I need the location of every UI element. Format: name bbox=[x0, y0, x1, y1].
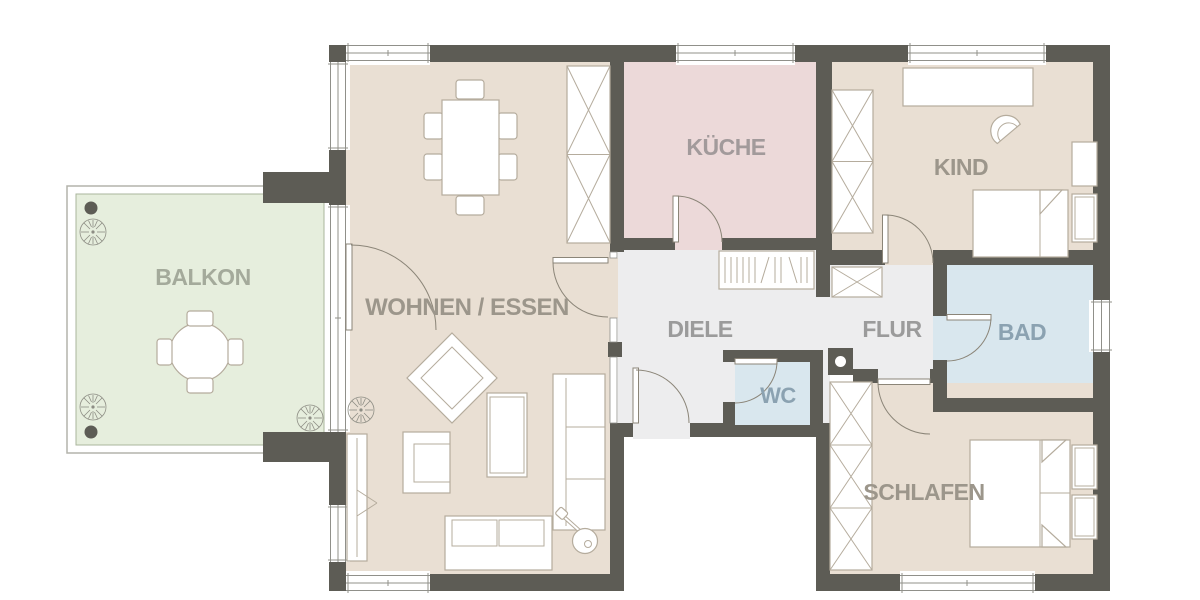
couch bbox=[445, 516, 552, 570]
planter-dot-icon bbox=[85, 426, 98, 439]
wardrobe-wohnen bbox=[567, 66, 610, 243]
window-left-lower bbox=[326, 505, 350, 562]
floor-passage bbox=[816, 297, 830, 348]
wall-bad-schlafen bbox=[933, 398, 1093, 412]
room-label-kueche: KÜCHE bbox=[686, 134, 765, 160]
window-top-kueche bbox=[676, 41, 795, 65]
dining-chair bbox=[424, 154, 443, 180]
room-label-diele: DIELE bbox=[667, 316, 732, 342]
plant-icon bbox=[348, 397, 374, 423]
desk bbox=[903, 68, 1033, 106]
wc-threshold bbox=[723, 362, 735, 402]
window-top-kind bbox=[908, 41, 1046, 65]
dining-chair bbox=[424, 113, 443, 139]
dining-table bbox=[442, 100, 499, 195]
balcony-chair-left bbox=[157, 339, 172, 365]
window-bad bbox=[1089, 300, 1114, 352]
wall-partition-post bbox=[608, 342, 622, 357]
dining-chair bbox=[456, 196, 484, 215]
entrance-threshold bbox=[633, 421, 690, 439]
wall-flur-schlafen-left bbox=[853, 369, 878, 383]
window-bottom-schlafen bbox=[900, 571, 1035, 595]
wall-diele-flur bbox=[816, 250, 830, 297]
wall-indent-left bbox=[610, 423, 624, 591]
balcony-chair-bottom bbox=[187, 378, 213, 393]
balcony-pier-top bbox=[263, 172, 346, 203]
armchair bbox=[403, 432, 450, 493]
wall-indent-right bbox=[816, 423, 830, 591]
wall-bad-left-upper bbox=[933, 265, 947, 316]
flur-cabinet bbox=[832, 267, 882, 297]
duct-dot-icon bbox=[835, 356, 846, 367]
wall-bad-left-lower bbox=[933, 360, 947, 398]
sofa bbox=[553, 374, 605, 530]
bed-schlafen bbox=[970, 440, 1070, 547]
kind-threshold bbox=[885, 250, 933, 265]
wardrobe-schlafen bbox=[830, 382, 872, 570]
room-label-bad: BAD bbox=[998, 319, 1046, 345]
nightstand-kind bbox=[1072, 194, 1097, 242]
nightstand-schlafen-bottom bbox=[1072, 495, 1097, 539]
room-label-kind: KIND bbox=[934, 154, 988, 180]
floor-wohnen-door-gap bbox=[610, 258, 618, 318]
balcony-chair-right bbox=[228, 339, 243, 365]
balcony bbox=[67, 186, 330, 453]
dining-chair bbox=[498, 154, 517, 180]
nightstand-schlafen-top bbox=[1072, 445, 1097, 489]
shelf-kind bbox=[1072, 142, 1097, 186]
planter-dot-icon bbox=[85, 202, 98, 215]
window-bottom-wohnen bbox=[346, 571, 430, 595]
coat-closet bbox=[719, 251, 814, 289]
plant-icon bbox=[297, 405, 323, 431]
balcony-pier-bottom bbox=[263, 432, 346, 462]
window-top-wohnen bbox=[346, 41, 430, 65]
wall-wohnen-kueche bbox=[610, 62, 624, 252]
dining-chair bbox=[456, 80, 484, 99]
bad-threshold bbox=[933, 316, 947, 360]
wall-wc-left bbox=[723, 402, 735, 425]
bed-kind bbox=[973, 190, 1068, 257]
wall-wc-right bbox=[810, 350, 823, 437]
floor-plan: BALKON WOHNEN / ESSEN KÜCHE KIND DIELE F… bbox=[0, 0, 1200, 600]
room-label-flur: FLUR bbox=[862, 316, 922, 342]
plant-icon bbox=[80, 219, 106, 245]
room-label-schlafen: SCHLAFEN bbox=[863, 479, 984, 505]
room-label-wohnen: WOHNEN / ESSEN bbox=[365, 294, 569, 321]
plant-icon bbox=[80, 394, 106, 420]
balcony-chair-top bbox=[187, 311, 213, 326]
wardrobe-kind bbox=[832, 90, 873, 233]
room-label-balkon: BALKON bbox=[155, 264, 250, 290]
wall-kueche-kind bbox=[816, 62, 832, 250]
kueche-threshold bbox=[675, 238, 722, 250]
dining-chair bbox=[498, 113, 517, 139]
balcony-table bbox=[170, 323, 230, 381]
window-left-upper bbox=[326, 62, 350, 150]
daybed bbox=[487, 393, 527, 477]
room-label-wc: WC bbox=[760, 383, 796, 408]
floor-plan-page: BALKON WOHNEN / ESSEN KÜCHE KIND DIELE F… bbox=[0, 0, 1200, 600]
